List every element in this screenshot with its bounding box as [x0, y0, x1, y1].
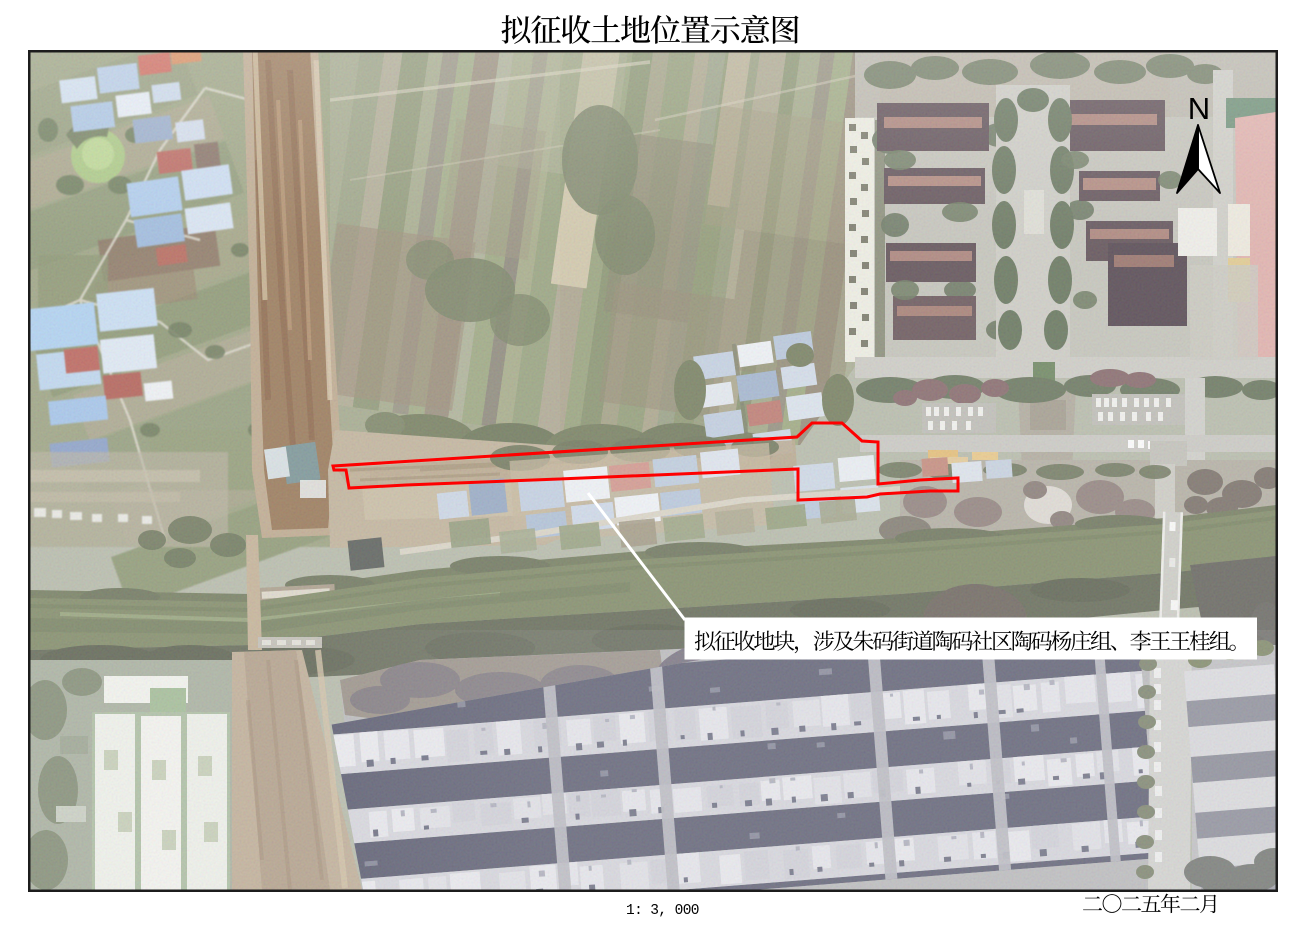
svg-text:N: N [1188, 91, 1210, 126]
svg-text:1: 3, 000: 1: 3, 000 [626, 903, 699, 919]
